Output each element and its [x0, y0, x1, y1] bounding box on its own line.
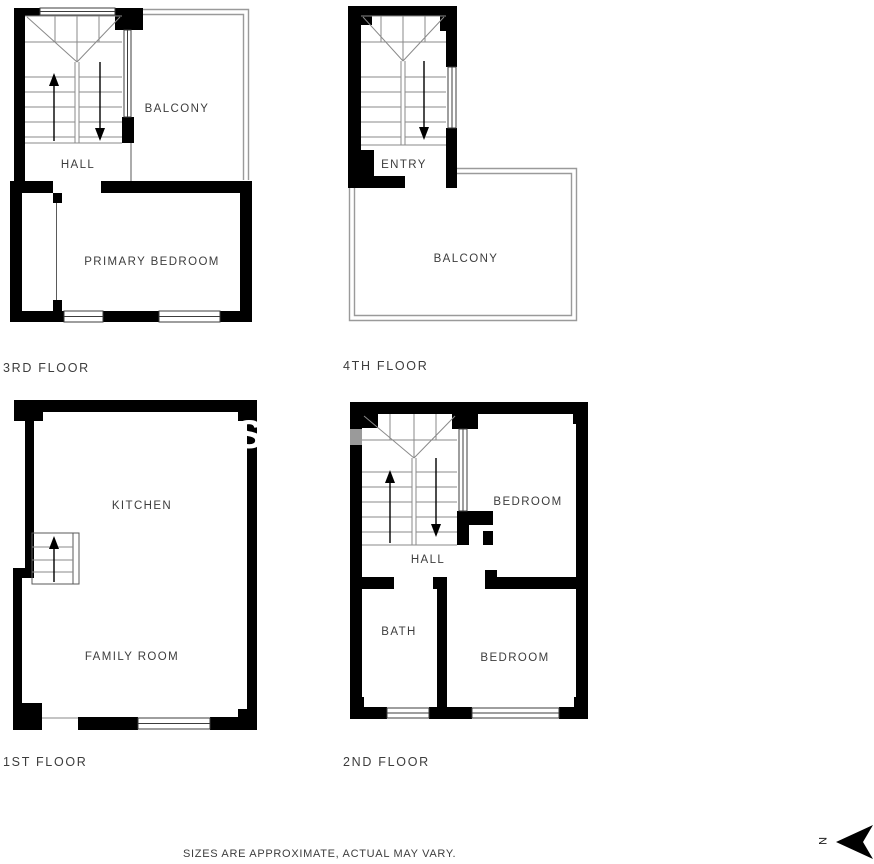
balcony-railing-4th	[350, 169, 577, 321]
floor-plan-4th: ENTRY BALCONY 4TH FLOOR	[343, 6, 577, 373]
floor-title-4th: 4TH FLOOR	[343, 359, 428, 373]
window-stair-3rd	[124, 30, 131, 117]
compass-label: N	[816, 837, 828, 845]
down-arrow-icon	[431, 458, 441, 537]
staircase-3rd	[25, 16, 122, 143]
floor-plan-2nd: BEDROOM HALL BATH BEDROOM 2ND FLOOR	[343, 402, 588, 769]
room-label-bath: BATH	[381, 626, 416, 638]
room-label-hall-3rd: HALL	[61, 159, 95, 171]
window-symbol	[472, 708, 559, 718]
window-stair-4th	[448, 67, 456, 128]
disclaimer-text: SIZES ARE APPROXIMATE, ACTUAL MAY VARY.	[183, 848, 456, 860]
room-label-hall-2nd: HALL	[411, 554, 445, 566]
room-label-balcony-4th: BALCONY	[434, 253, 499, 265]
window-stair-2nd	[459, 429, 467, 511]
room-label-primary-bedroom: PRIMARY BEDROOM	[84, 256, 220, 268]
room-label-entry: ENTRY	[381, 159, 427, 171]
room-label-kitchen: KITCHEN	[112, 500, 172, 512]
watermark-smudge	[350, 429, 362, 445]
room-label-bedroom-lower: BEDROOM	[480, 652, 549, 664]
window-symbol	[159, 311, 220, 322]
balcony-railing-3rd	[143, 10, 249, 181]
north-arrow-icon: N	[816, 825, 873, 859]
footer: SIZES ARE APPROXIMATE, ACTUAL MAY VARY. …	[183, 825, 873, 860]
window-symbol	[387, 708, 429, 718]
walls-1st	[13, 400, 257, 730]
staircase-4th	[361, 16, 446, 145]
window-symbol	[138, 718, 210, 729]
staircase-2nd	[362, 414, 457, 545]
room-label-family-room: FAMILY ROOM	[85, 651, 179, 663]
watermark-fragment: S	[236, 413, 263, 457]
floorplan-svg: HALL BALCONY PRIMARY BEDROOM 3RD FLOOR	[0, 0, 874, 864]
floor-plan-1st: S KITCHEN FAMILY ROOM 1ST FLOOR	[3, 400, 262, 769]
floor-title-1st: 1ST FLOOR	[3, 755, 88, 769]
room-label-balcony-3rd: BALCONY	[145, 103, 210, 115]
room-label-bedroom-upper: BEDROOM	[493, 496, 562, 508]
floor-title-3rd: 3RD FLOOR	[3, 361, 90, 375]
floor-title-2nd: 2ND FLOOR	[343, 755, 430, 769]
window-symbol	[64, 311, 103, 322]
floor-plan-3rd: HALL BALCONY PRIMARY BEDROOM 3RD FLOOR	[3, 8, 252, 375]
walls-2nd	[350, 402, 588, 719]
staircase-1st	[32, 533, 79, 584]
window-top-3rd	[40, 8, 115, 15]
up-arrow-icon	[49, 536, 59, 582]
down-arrow-icon	[419, 61, 429, 140]
floorplan-page: HALL BALCONY PRIMARY BEDROOM 3RD FLOOR	[0, 0, 874, 864]
down-arrow-icon	[95, 62, 105, 141]
